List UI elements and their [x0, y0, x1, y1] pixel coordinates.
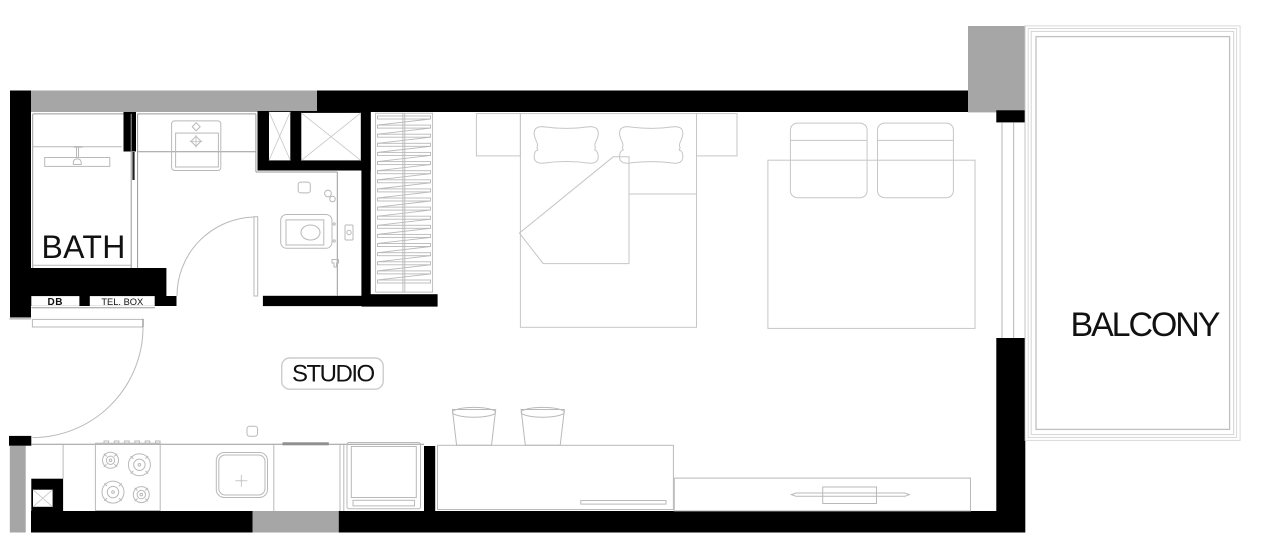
- svg-text:DB: DB: [47, 297, 63, 308]
- svg-text:BATH: BATH: [42, 229, 126, 265]
- svg-text:TEL. BOX: TEL. BOX: [101, 297, 143, 307]
- svg-text:STUDIO: STUDIO: [292, 361, 375, 388]
- svg-text:BALCONY: BALCONY: [1071, 306, 1220, 344]
